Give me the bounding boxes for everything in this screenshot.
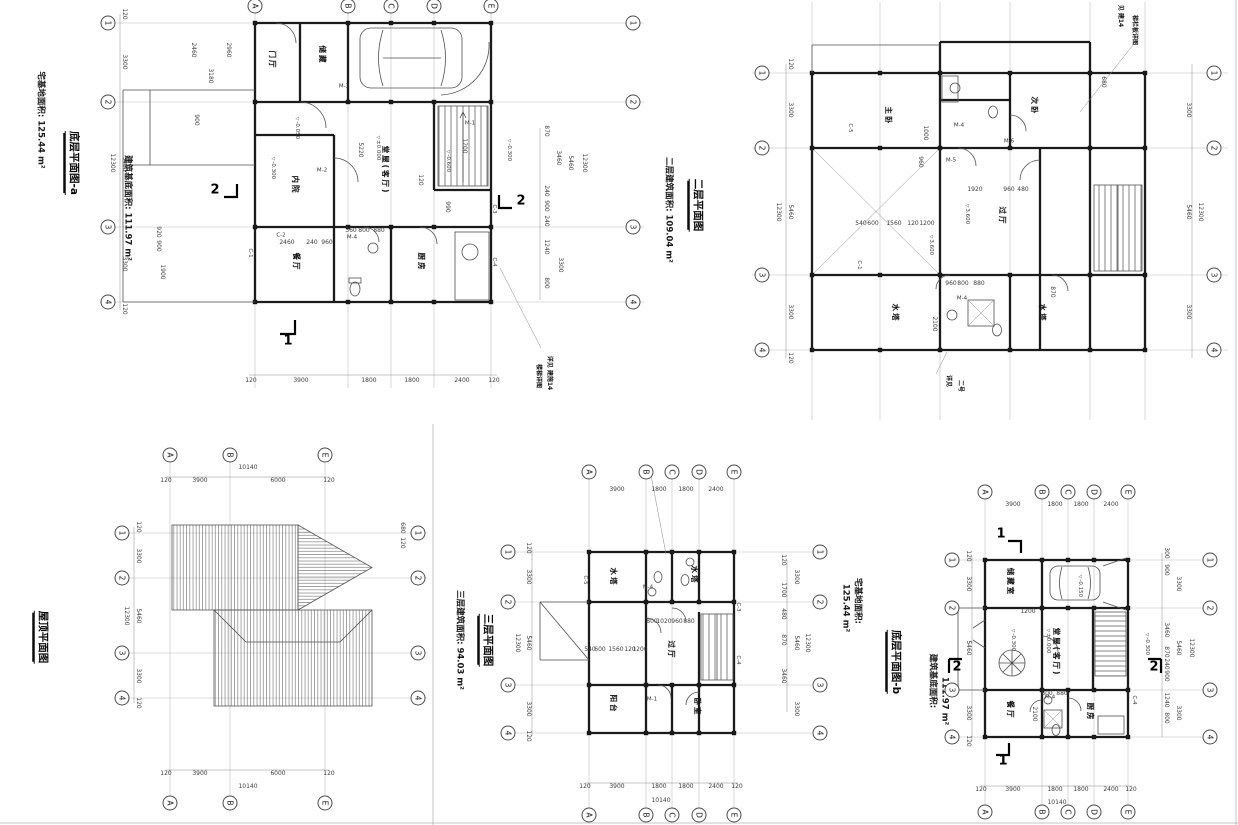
bathroom-fixtures bbox=[349, 243, 378, 296]
car-icon bbox=[360, 28, 462, 88]
ground-floor-b-linework bbox=[949, 541, 1162, 786]
third-floor-linework bbox=[532, 470, 787, 783]
roof-slope-lower bbox=[214, 610, 372, 706]
roof-hip-triangle bbox=[298, 525, 372, 610]
section-cut-marks bbox=[224, 184, 512, 334]
garage-door-arc bbox=[441, 42, 489, 95]
bathroom-fixtures bbox=[1044, 696, 1062, 736]
section-cut-marks bbox=[949, 541, 1161, 755]
kitchen-counter bbox=[1098, 716, 1124, 734]
roof-slope-upper bbox=[172, 525, 298, 610]
bathroom-fixtures bbox=[942, 76, 1002, 336]
ground-floor-a-linework bbox=[120, 14, 541, 375]
grid-ground-floor-a bbox=[100, 2, 644, 388]
drawing-canvas: 宅基地面积: 125.44 m²底层平面图-a建筑基底面积: 111.97 m²… bbox=[0, 0, 1238, 825]
second-floor-linework bbox=[786, 42, 1192, 374]
page-frame-lines bbox=[0, 0, 1238, 825]
grid-third-floor bbox=[512, 478, 812, 810]
door-swing-arcs bbox=[936, 115, 1068, 291]
roof-plan-linework bbox=[134, 477, 372, 770]
stairs bbox=[1095, 612, 1126, 676]
courtyard-tree-icon bbox=[999, 650, 1025, 676]
grid-second-floor bbox=[752, 2, 1228, 420]
door-swing-arcs bbox=[1030, 636, 1081, 712]
kitchen-fixtures bbox=[455, 232, 489, 300]
garage-door bbox=[1103, 558, 1126, 610]
car-icon bbox=[1050, 566, 1100, 600]
grid-ground-floor-b bbox=[958, 498, 1205, 808]
plan-linework bbox=[0, 0, 1238, 825]
